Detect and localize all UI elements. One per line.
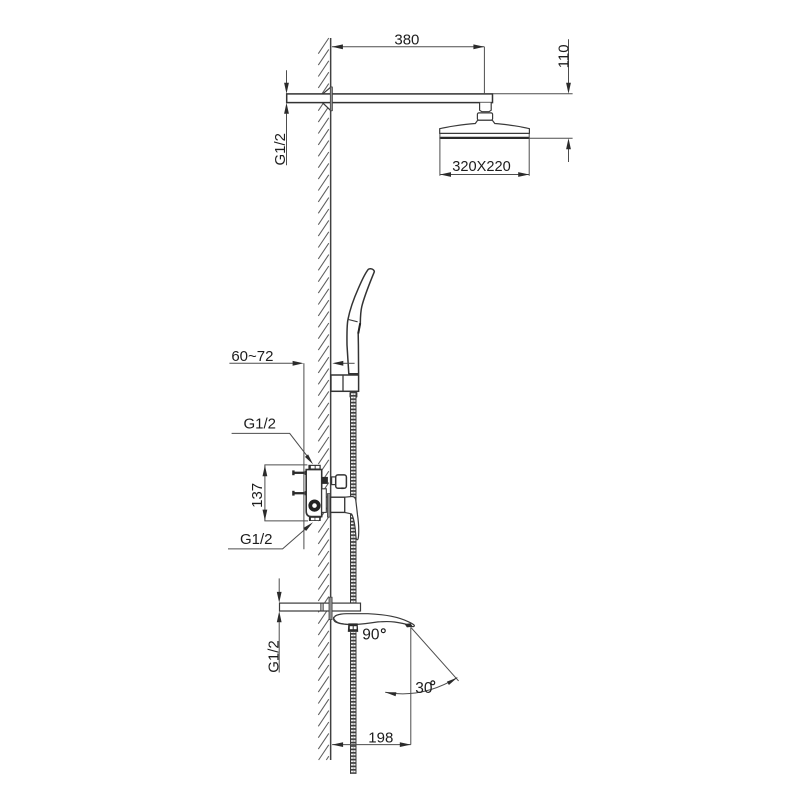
svg-text:G1/2: G1/2 bbox=[240, 531, 273, 548]
svg-text:90: 90 bbox=[362, 627, 380, 644]
svg-text:198: 198 bbox=[368, 729, 393, 746]
svg-text:G1/2: G1/2 bbox=[244, 416, 277, 433]
svg-text:320X220: 320X220 bbox=[452, 159, 510, 175]
svg-text:60~72: 60~72 bbox=[231, 348, 273, 365]
svg-text:G1/2: G1/2 bbox=[265, 640, 282, 673]
svg-text:30: 30 bbox=[415, 680, 433, 697]
svg-text:G1/2: G1/2 bbox=[272, 133, 289, 166]
svg-text:137: 137 bbox=[249, 483, 266, 508]
svg-text:380: 380 bbox=[394, 31, 419, 48]
svg-text:110: 110 bbox=[555, 44, 572, 68]
